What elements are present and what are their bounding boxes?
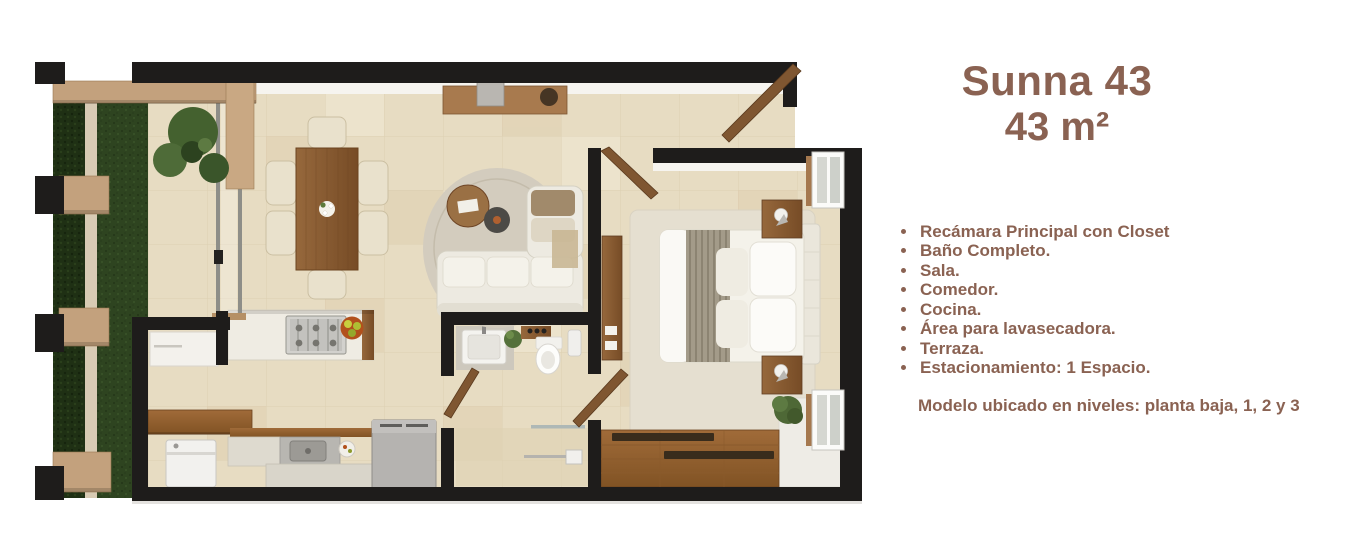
shower-head xyxy=(566,450,582,464)
feature-item: Estacionamiento: 1 Espacio. xyxy=(918,358,1347,378)
model-title: Sunna 43 xyxy=(880,58,1234,103)
refrigerator xyxy=(372,420,436,489)
floor-plan-svg xyxy=(0,0,880,551)
feature-item: Cocina. xyxy=(918,300,1347,320)
feature-item: Sala. xyxy=(918,261,1347,281)
terrace-ledge xyxy=(85,84,97,498)
hedge-strip xyxy=(53,84,85,498)
sofa-pillow-brown xyxy=(531,190,575,216)
fruit-bowl xyxy=(341,317,364,340)
pillow xyxy=(750,298,796,352)
levels-note: Modelo ubicado en niveles: planta baja, … xyxy=(918,396,1347,416)
table-centerpiece xyxy=(319,201,335,217)
sofa-throw xyxy=(552,230,578,268)
closet-floor xyxy=(601,430,779,487)
pillow xyxy=(750,242,796,296)
feature-item: Comedor. xyxy=(918,280,1347,300)
shelf-decor xyxy=(540,88,558,106)
living-room xyxy=(423,168,583,328)
info-panel: Sunna 43 43 m² Recámara Principal con Cl… xyxy=(880,0,1347,551)
bathroom-vanity xyxy=(462,326,506,364)
nightstand-top xyxy=(762,200,802,238)
closet-rail xyxy=(612,433,714,441)
shower xyxy=(456,425,588,486)
page: Sunna 43 43 m² Recámara Principal con Cl… xyxy=(0,0,1347,551)
floor-plan xyxy=(0,0,880,551)
feature-item: Terraza. xyxy=(918,339,1347,359)
washer-dryer xyxy=(166,440,216,487)
bedroom-window-top xyxy=(806,152,844,208)
bedroom xyxy=(601,200,841,487)
stove xyxy=(286,316,346,354)
bed xyxy=(660,224,820,364)
wall-shadow xyxy=(132,501,862,504)
laundry-alcove xyxy=(150,332,218,366)
feature-item: Área para lavasecadora. xyxy=(918,319,1347,339)
feature-list: Recámara Principal con Closet Baño Compl… xyxy=(900,222,1347,378)
shower-glass xyxy=(531,425,585,429)
model-area: 43 m² xyxy=(880,106,1234,149)
speaker xyxy=(477,79,504,106)
nightstand-bottom xyxy=(762,356,802,394)
feature-item: Recámara Principal con Closet xyxy=(918,222,1347,242)
water-heater xyxy=(568,330,581,356)
feature-item: Baño Completo. xyxy=(918,241,1347,261)
closet-rail xyxy=(664,451,774,459)
decor-plate xyxy=(339,441,355,457)
bedroom-window-bottom xyxy=(806,390,844,450)
